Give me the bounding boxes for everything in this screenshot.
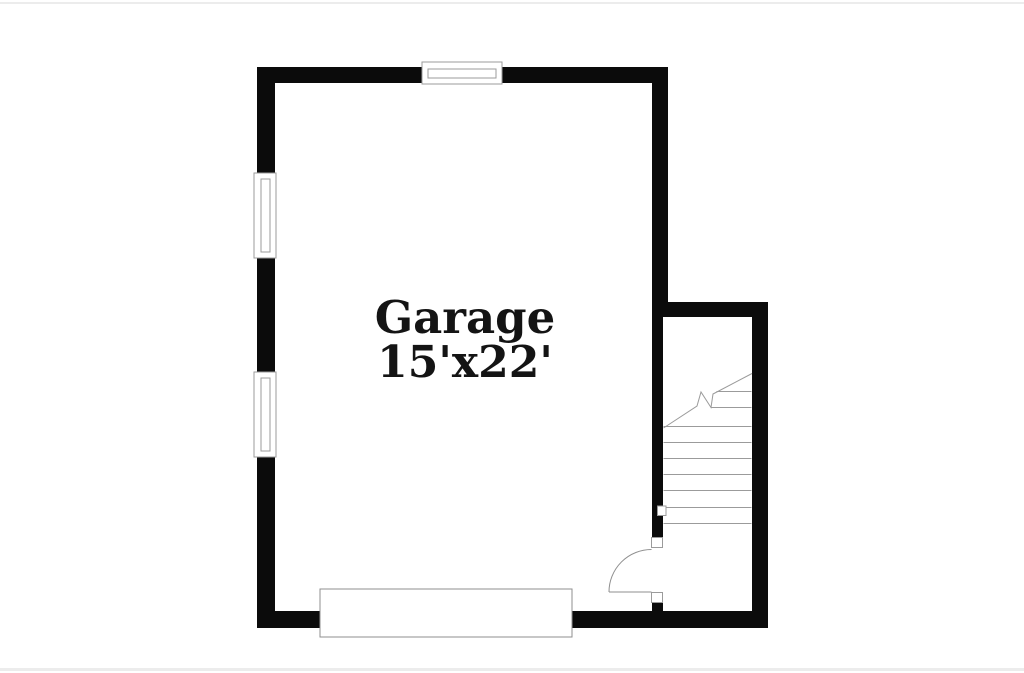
room-label-group: Garage 15'x22' <box>375 291 556 388</box>
left-window-lower <box>254 372 276 457</box>
left-window-upper <box>254 173 276 258</box>
window-frame <box>422 62 502 84</box>
staircase <box>658 374 753 524</box>
floor-plan-image: Garage 15'x22' <box>0 0 1024 673</box>
door-jamb-top <box>652 538 663 548</box>
wall-left-upper-segment <box>257 67 275 173</box>
floor-plan-svg: Garage 15'x22' <box>0 0 1024 673</box>
wall-annex-right <box>752 302 768 628</box>
entry-door-swing <box>609 550 652 593</box>
door-jamb-bottom <box>652 593 663 603</box>
wall-left-lower-segment <box>257 457 275 628</box>
top-window <box>422 62 502 84</box>
frame-line-top <box>0 2 1024 4</box>
wall-stair-interior <box>652 317 663 538</box>
wall-top-right-segment <box>502 67 668 83</box>
window-frame <box>254 372 276 457</box>
window-frame <box>254 173 276 258</box>
wall-top-left-segment <box>257 67 422 83</box>
frame-line-bottom <box>0 668 1024 671</box>
stair-newel-marker <box>658 506 667 516</box>
room-size-label: 15'x22' <box>377 337 553 388</box>
wall-left-middle-segment <box>257 258 275 372</box>
entry-door <box>609 538 663 603</box>
wall-annex-top <box>652 302 768 317</box>
stair-break-line <box>664 374 753 429</box>
wall-right-exterior <box>652 67 668 302</box>
garage-door <box>320 589 572 637</box>
